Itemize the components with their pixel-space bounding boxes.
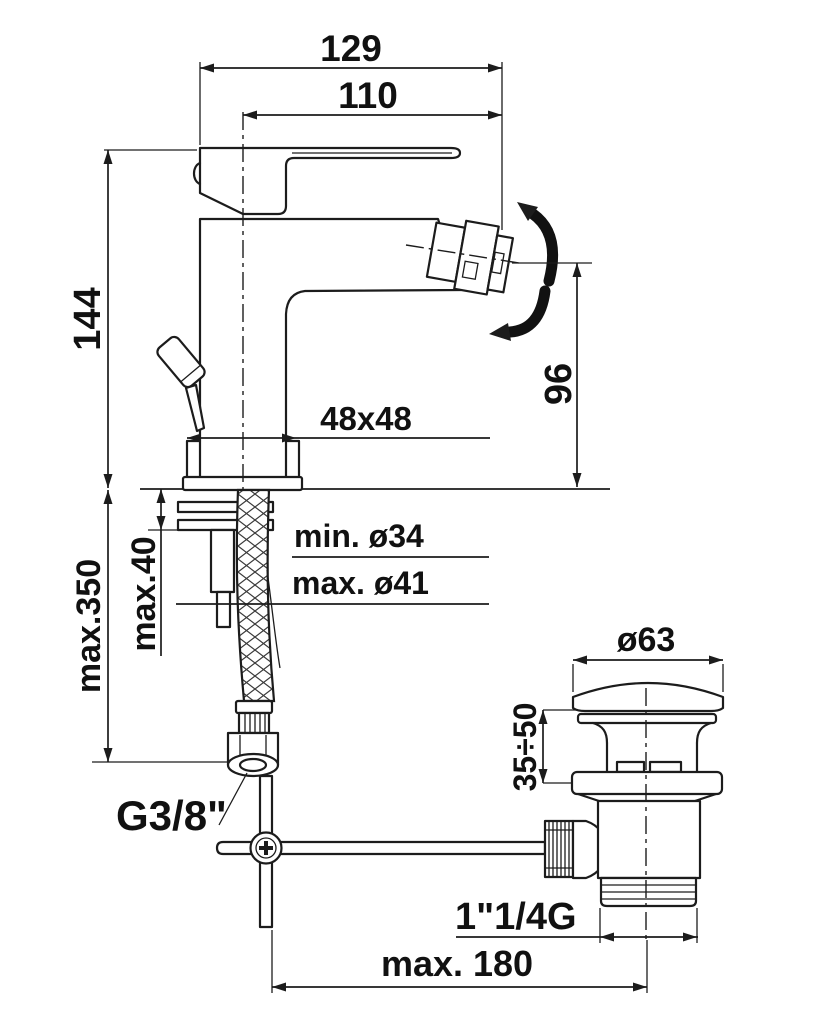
- waste-neck-flare: [593, 723, 711, 743]
- faucet-body: [200, 219, 461, 478]
- dim-144: 144: [67, 150, 197, 488]
- faucet-handle-lever: [200, 148, 460, 214]
- dim-hole-min-label: min. ø34: [294, 518, 424, 554]
- rod-joint-screw: [251, 833, 282, 864]
- bidet-mixer-drawing: 129 110 144 max.350 max.40 96: [0, 0, 814, 1024]
- dim-129-label: 129: [320, 28, 382, 69]
- mounting-stud: [211, 530, 234, 592]
- waste-thread-label: 1"1/4G: [455, 896, 577, 938]
- dim-max180-label: max. 180: [381, 943, 533, 984]
- dim-max350-label: max.350: [70, 559, 108, 693]
- waste-cap-lip: [578, 714, 716, 723]
- hose-collar: [236, 701, 272, 713]
- waste-connector-knurl: [545, 821, 573, 877]
- waste-clip-right: [650, 762, 681, 772]
- dim-waste-height: 35÷50: [507, 703, 578, 792]
- waste-clip-left: [617, 762, 644, 772]
- dim-110: 110: [243, 75, 502, 120]
- supply-hose: [237, 490, 274, 701]
- technical-drawing-page: 129 110 144 max.350 max.40 96: [0, 0, 814, 1024]
- waste-flange: [572, 772, 722, 794]
- dim-max40: max.40: [125, 489, 178, 656]
- waste-body: [598, 801, 700, 878]
- dim-144-label: 144: [67, 287, 109, 350]
- nozzle-swivel-arrow-down-icon: [489, 291, 545, 341]
- supply-thread-label: G3/8": [116, 792, 227, 839]
- dim-supply-thread: G3/8": [116, 773, 247, 839]
- hose-supply-nut: [228, 733, 278, 776]
- dim-96-label: 96: [538, 363, 580, 405]
- waste-cap: [573, 683, 723, 711]
- dim-96: 96: [512, 263, 592, 487]
- dim-max40-label: max.40: [125, 536, 163, 651]
- dim-48x48-label: 48x48: [320, 400, 412, 437]
- nozzle-swivel-arrow-up-icon: [517, 202, 553, 281]
- dim-3550-label: 35÷50: [507, 703, 543, 792]
- mounting-stud-tip: [217, 592, 230, 627]
- hose-crimp: [239, 713, 269, 733]
- dim-hole-max-label: max. ø41: [292, 565, 429, 601]
- dim-110-label: 110: [338, 75, 398, 116]
- dim-waste-cap: ø63: [573, 621, 723, 692]
- dim-max180: max. 180: [272, 930, 647, 993]
- waste-thread: [601, 878, 696, 906]
- dim-63-label: ø63: [617, 621, 676, 659]
